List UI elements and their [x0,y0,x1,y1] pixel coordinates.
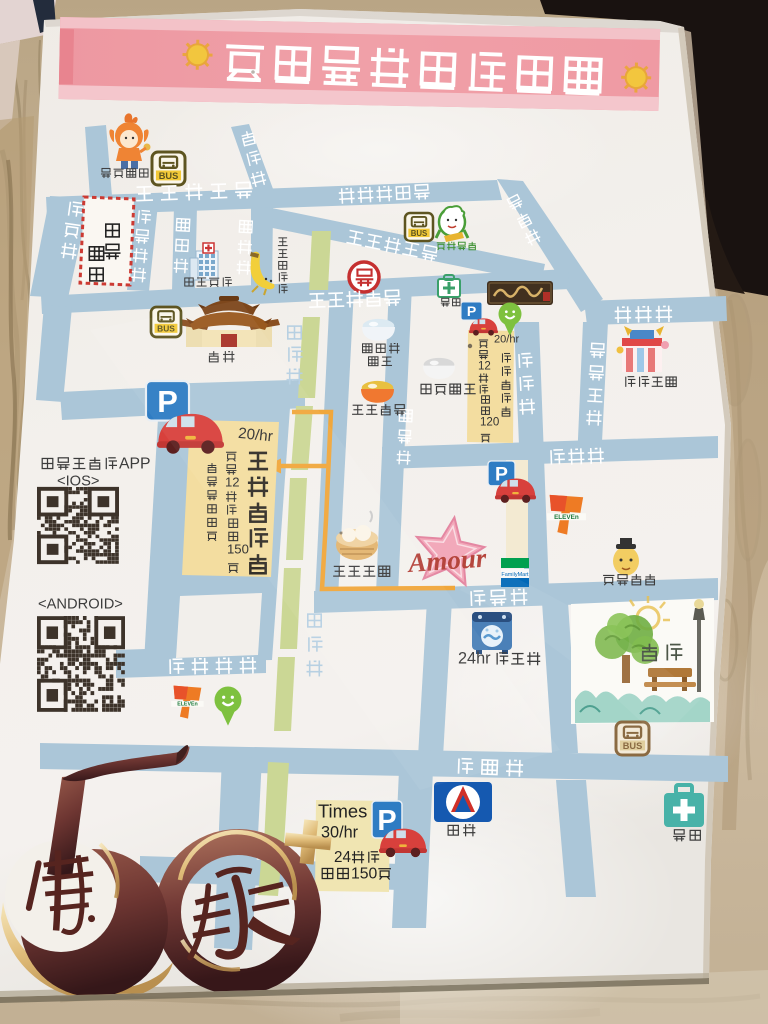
svg-text:24: 24 [334,849,351,866]
svg-text:BUS: BUS [159,171,179,181]
svg-text:Times: Times [318,800,367,821]
svg-text:APP: APP [119,455,151,472]
svg-text:30/hr: 30/hr [321,824,359,842]
svg-text:12: 12 [478,360,491,372]
svg-text:<IOS>: <IOS> [57,473,99,489]
svg-text:120: 120 [480,416,499,428]
svg-text:150: 150 [351,865,378,882]
svg-text:20/hr: 20/hr [494,334,519,346]
svg-text:ELEVEn: ELEVEn [177,702,197,708]
svg-text:ELEVEn: ELEVEn [554,514,579,521]
svg-text:<ANDROID>: <ANDROID> [38,596,123,612]
svg-text:BUS: BUS [623,741,643,751]
svg-text:BUS: BUS [411,229,428,238]
svg-text:P: P [467,303,476,319]
